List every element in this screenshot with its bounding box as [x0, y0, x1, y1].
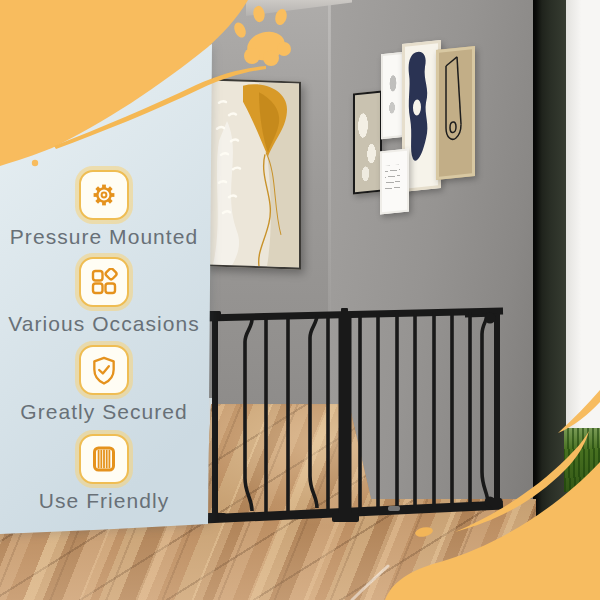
feature-list: Pressure Mounted Various Occasions G	[0, 0, 210, 600]
fence-icon	[79, 434, 129, 484]
feature-various-occasions: Various Occasions	[0, 257, 208, 336]
product-showcase-image: Pressure Mounted Various Occasions G	[0, 0, 600, 600]
feature-pressure-mounted: Pressure Mounted	[0, 170, 208, 249]
feature-greatly-secured: Greatly Secured	[0, 345, 208, 424]
feature-label: Greatly Secured	[20, 400, 188, 424]
feature-use-friendly: Use Friendly	[0, 434, 208, 513]
feature-label: Various Occasions	[8, 312, 199, 336]
shapes-icon	[79, 257, 129, 307]
feature-label: Use Friendly	[39, 489, 169, 513]
shield-check-icon	[79, 345, 129, 395]
gear-icon	[79, 170, 129, 220]
feature-label: Pressure Mounted	[10, 225, 198, 249]
